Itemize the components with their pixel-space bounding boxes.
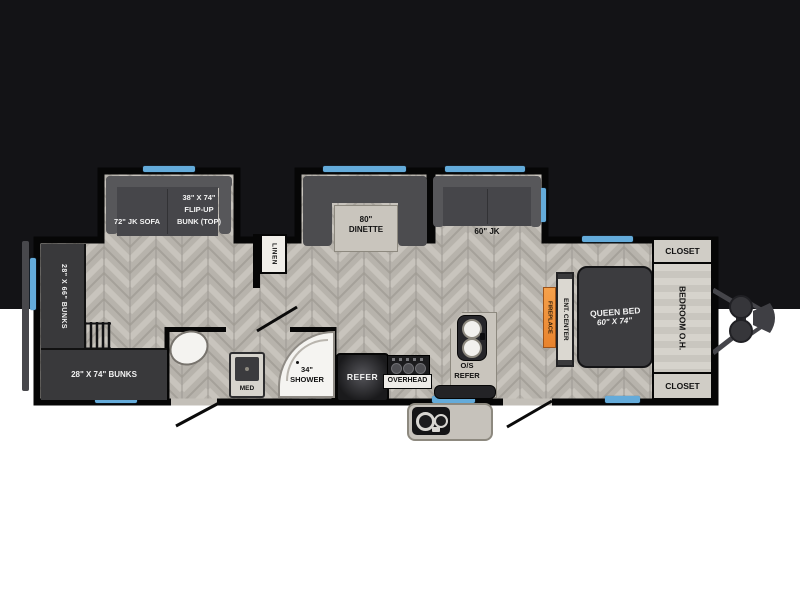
bedroom-overhead-cabinet: BEDROOM O.H. — [652, 262, 713, 374]
rear-bunks: 28" X 74" BUNKS — [41, 348, 167, 400]
flipup-bunk-label-size: 38" X 74" — [167, 193, 231, 202]
outdoor-burner-icon — [434, 414, 448, 428]
med-cabinet-sink: MED — [229, 352, 265, 398]
shower-label: SHOWER — [284, 375, 330, 384]
outside-kitchen-ledge — [434, 385, 496, 399]
outdoor-griddle — [412, 407, 450, 435]
stove-cooktop — [387, 355, 430, 376]
queen-bed: QUEEN BED 60" X 74" — [577, 266, 653, 368]
burner-icon — [391, 363, 402, 374]
sink-bowl-icon — [462, 319, 482, 339]
overhead-cabinet: OVERHEAD — [383, 374, 432, 389]
window — [605, 396, 640, 403]
closet-top: CLOSET — [652, 238, 713, 264]
ent-center-cap — [558, 360, 572, 365]
shower-stall: 34" SHOWER — [278, 331, 335, 398]
bunk-ladder-icon — [83, 322, 111, 350]
fireplace-label: FIREPLACE — [547, 301, 553, 334]
dinette-size-label: 80" — [335, 215, 397, 225]
closet-top-label: CLOSET — [665, 246, 699, 256]
faucet-icon — [480, 333, 485, 340]
floorplan-page: 328SB — [0, 0, 800, 600]
os-refer-label-line2: REFER — [447, 371, 487, 380]
rear-entry-door-line — [176, 403, 219, 426]
burner-icon — [403, 363, 414, 374]
entertainment-center: ENT. CENTER — [556, 272, 574, 367]
dinette-table: 80" DINETTE — [334, 205, 398, 252]
entry-opening-main — [503, 399, 552, 406]
dinette-label: DINETTE — [335, 225, 397, 235]
closet-bottom-label: CLOSET — [665, 381, 699, 391]
jk60-sofa-label: 60" JK — [459, 227, 515, 237]
jk-sofa-label: 72" JK SOFA — [105, 217, 169, 226]
outdoor-kitchen-pad — [407, 403, 493, 441]
rear-bunks-label: 28" X 74" BUNKS — [71, 370, 137, 380]
refer-label: REFER — [347, 372, 378, 383]
window — [30, 258, 36, 310]
flipup-bunk-label-flipup: FLIP-UP — [167, 205, 231, 214]
shower-drain-icon — [296, 361, 299, 364]
linen-wall-stub — [253, 234, 260, 288]
jk60-sofa-arm — [530, 176, 541, 227]
main-entry-door-line — [507, 401, 552, 427]
ent-center-label: ENT. CENTER — [561, 298, 569, 341]
window — [323, 166, 406, 172]
outdoor-griddle-detail — [432, 427, 440, 432]
burner-icon — [415, 363, 426, 374]
dinette-bench-right — [398, 176, 427, 246]
side-bunks: 28" X 66" BUNKS — [41, 244, 86, 350]
jk60-seat-divider — [487, 189, 488, 224]
bedroom-overhead-label: BEDROOM O.H. — [677, 286, 687, 350]
kitchen-sink — [457, 315, 487, 361]
bathroom-door-line — [257, 307, 297, 331]
linen-label: LINEN — [270, 243, 278, 265]
sink-bowl-icon — [462, 338, 482, 358]
overhead-label: OVERHEAD — [388, 377, 428, 385]
window — [445, 166, 525, 172]
propane-tank-icon — [730, 320, 752, 342]
dinette-bench-left — [303, 176, 332, 246]
med-label: MED — [231, 385, 263, 393]
closet-bottom: CLOSET — [652, 372, 713, 400]
med-sink-drain — [245, 367, 249, 371]
ent-center-cap — [558, 274, 572, 279]
window — [143, 166, 195, 172]
refrigerator: REFER — [336, 353, 389, 402]
stove-knobs — [392, 358, 425, 361]
queen-bed-size-label: 60" X 74" — [597, 316, 633, 328]
flipup-bunk-label-top: BUNK (TOP) — [167, 217, 231, 226]
toilet-icon — [164, 324, 214, 371]
shower-size-label: 34" — [284, 365, 330, 374]
entry-opening-bath — [171, 399, 217, 406]
side-bunks-label: 28" X 66" BUNKS — [58, 264, 67, 329]
window — [582, 236, 633, 242]
fireplace: FIREPLACE — [543, 287, 556, 348]
linen-closet: LINEN — [260, 234, 287, 274]
os-refer-label-line1: O/S — [447, 361, 487, 370]
